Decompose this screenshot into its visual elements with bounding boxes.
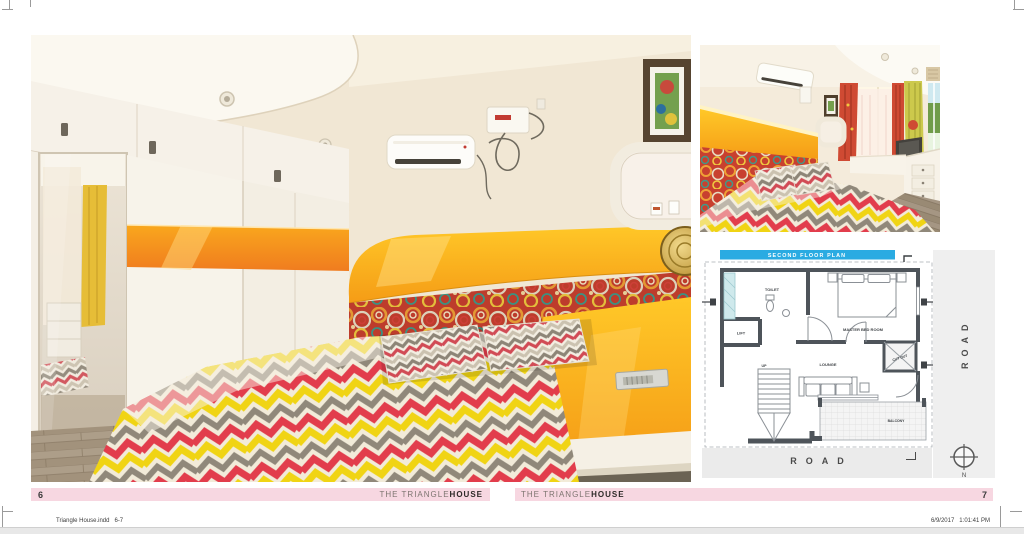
footer-title-bold: HOUSE [450,490,483,499]
footer-title-bold: HOUSE [591,490,624,499]
side-window [926,67,940,155]
sofa-seat [836,384,850,396]
crop-mark [1010,511,1022,512]
road-label-side: ROAD [960,327,970,375]
corner-marker [906,452,916,460]
sheet-bottom-strip [0,527,1024,534]
inset-bedroom-photo [700,45,940,232]
sofa-seat [806,384,820,396]
crop-mark [2,9,13,10]
footer-title-regular: THE TRIANGLE [379,490,449,499]
nightstand-symbol [897,273,906,282]
sofa-arm [852,377,857,396]
wall-shelf [615,147,691,225]
main-bedroom-photo [31,35,691,482]
label-lounge: LOUNGE [819,362,836,367]
sofa-arm [799,377,804,396]
inset-scene [700,45,940,232]
crop-mark [2,506,3,527]
accent-band-orange [127,225,349,271]
sheer-curtain [858,89,894,161]
stairs [758,369,790,413]
footer-title-regular: THE TRIANGLE [521,490,591,499]
page-number-left: 6 [38,490,43,500]
wall-shelf [818,119,844,145]
label-master-bedroom: MASTER BED ROOM [843,327,884,332]
footer-bar-right: THE TRIANGLEHOUSE 7 [515,488,993,501]
footer-title: THE TRIANGLEHOUSE [521,490,625,499]
switch-plate [616,369,669,390]
mirror-reflected-curtain [81,185,107,327]
spotlight [912,68,918,74]
compass-icon: N [946,444,982,478]
window-symbol [917,287,920,315]
shower-area [724,273,735,319]
label-lift: LIFT [737,331,746,336]
crop-mark [9,0,10,10]
road-side-strip: ROAD N [933,250,995,478]
bedroom-scene [31,35,691,482]
side-table [860,383,869,392]
page-number-right: 7 [982,490,987,500]
label-toilet: TOILET [765,287,780,292]
toilet-tank [766,295,774,300]
picture-frame [824,95,838,117]
remote-holder [800,87,811,103]
sofa-seat [821,384,835,396]
sofa-back [804,377,852,384]
window-seat [850,155,906,175]
crop-mark [30,0,31,7]
balcony-area [812,398,926,441]
footer-bar-left: 6 THE TRIANGLEHOUSE [31,488,490,501]
picture-frame [643,59,691,143]
compass-north-label: N [962,473,966,478]
crop-mark [1014,0,1015,10]
pillow [790,162,835,195]
crop-mark [1000,506,1001,527]
wardrobe-mirror [39,153,127,445]
label-balcony: BALCONY [888,419,906,423]
plan-title: SECOND FLOOR PLAN [768,253,846,259]
road-label-bottom: ROAD [702,456,932,466]
footer-title: THE TRIANGLEHOUSE [379,490,483,499]
corner-marker [904,256,912,262]
floor-plan: SECOND FLOOR PLAN [700,245,936,451]
label-up: UP [762,364,768,368]
nightstand-symbol [828,273,837,282]
crop-mark [2,511,13,512]
curtain-tieback [908,120,918,130]
print-slug-left: Triangle House.indd 6-7 [56,518,123,524]
air-conditioner [387,135,475,169]
sink-symbol [783,310,790,317]
magazine-spread: SECOND FLOOR PLAN [0,0,1024,534]
print-slug-right: 6/9/2017 1:01:41 PM [931,518,990,524]
road-band: ROAD [702,448,932,478]
toilet-symbol [767,301,774,312]
spotlight [882,54,889,61]
